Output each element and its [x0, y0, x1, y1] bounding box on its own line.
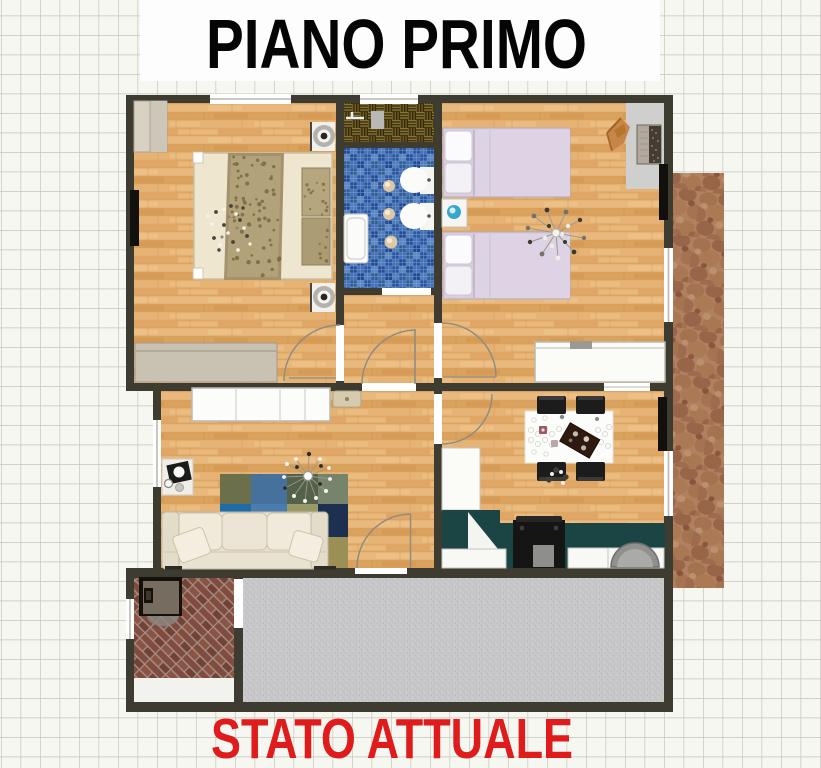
- svg-text:PIANO PRIMO: PIANO PRIMO: [206, 5, 587, 83]
- svg-text:STATO ATTUALE: STATO ATTUALE: [211, 707, 573, 768]
